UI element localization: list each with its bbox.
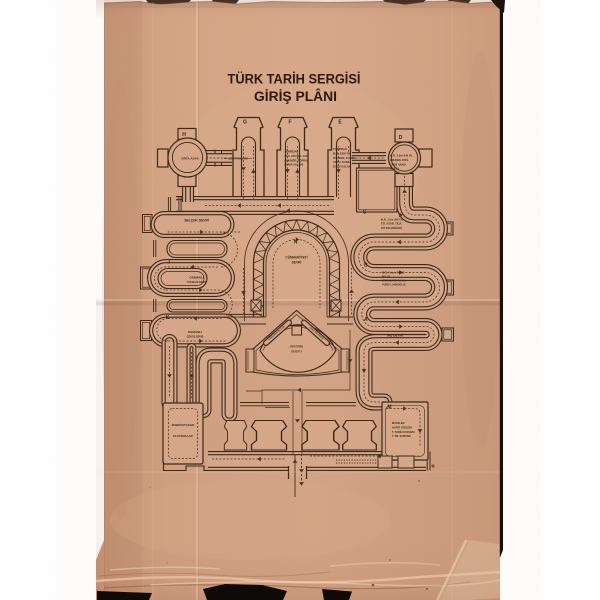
svg-text:EDEBİYATÇILER: EDEBİYATÇILER: [172, 423, 196, 427]
svg-text:DEVRİ: DEVRİ: [292, 261, 302, 265]
svg-text:(TÜRKLERİN İLKAN: (TÜRKLERİN İLKAN: [382, 280, 406, 283]
svg-text:K: K: [166, 315, 170, 321]
svg-text:M.Ö. 3 bin e FINAD: M.Ö. 3 bin e FINAD: [382, 272, 405, 275]
svg-text:ORTA ASYA: ORTA ASYA: [181, 157, 199, 161]
svg-text:ELYAZMALAR: ELYAZMALAR: [173, 434, 193, 438]
svg-text:YURDU, ANADOLU): YURDU, ANADOLU): [382, 284, 406, 287]
svg-text:EÜCÜ ASLAN: EÜCÜ ASLAN: [333, 165, 351, 169]
svg-text:N: N: [294, 240, 298, 246]
svg-text:H: H: [182, 132, 186, 138]
svg-text:ÖTÜKEN, KUMRA: ÖTÜKEN, KUMRA: [333, 156, 356, 160]
svg-text:ÇÖKÜŞ DEVRİ: ÇÖKÜŞ DEVRİ: [187, 335, 204, 338]
svg-text:M.Ö. 220-M.S. 100: M.Ö. 220-M.S. 100: [285, 154, 308, 158]
svg-text:GİRİŞ PLÂNI: GİRİŞ PLÂNI: [254, 89, 337, 104]
svg-text:A: A: [364, 317, 368, 323]
svg-text:M.Ö. 2 bin 800 YIL: M.Ö. 2 bin 800 YIL: [390, 154, 413, 158]
svg-text:TAŞ DEVRİ: TAŞ DEVRİ: [386, 334, 403, 338]
svg-text:OSMANLI: OSMANLI: [189, 276, 203, 280]
svg-text:J: J: [167, 260, 170, 266]
svg-text:OSMANLI: OSMANLI: [188, 330, 202, 334]
svg-text:CÜMHURİYETİ: CÜMHURİYETİ: [285, 255, 307, 260]
svg-text:NAKİL): NAKİL): [390, 167, 399, 171]
svg-text:KUMA ASLANİ: KUMA ASLANİ: [285, 163, 304, 167]
svg-text:B: B: [364, 263, 368, 269]
svg-text:F: F: [288, 120, 291, 126]
svg-text:SELÇUK DEVRİ: SELÇUK DEVRİ: [184, 219, 209, 223]
svg-text:KÜKNÖR, TOPRAK: KÜKNÖR, TOPRAK: [285, 158, 310, 162]
svg-text:YÜKSELİŞ DEVRİ: YÜKSELİŞ DEVRİ: [187, 281, 207, 284]
svg-text:G: G: [243, 120, 247, 126]
svg-text:C: C: [363, 210, 367, 216]
svg-text:M.Ö. 1300-700: M.Ö. 1300-700: [333, 151, 351, 155]
svg-text:ATATÜRK: ATATÜRK: [290, 344, 305, 349]
svg-text:D: D: [399, 135, 403, 141]
svg-text:BÜSTÜ: BÜSTÜ: [291, 349, 301, 354]
svg-text:TÜRK TARİH SERGİSİ: TÜRK TARİH SERGİSİ: [228, 72, 361, 87]
svg-text:AKSU, KABİL: AKSU, KABİL: [333, 160, 351, 164]
svg-text:ÇIKIŞ ANAD.: ÇIKIŞ ANAD.: [390, 162, 407, 166]
svg-text:M: M: [387, 405, 391, 411]
svg-text:MIY YIL: MIY YIL: [382, 276, 391, 279]
